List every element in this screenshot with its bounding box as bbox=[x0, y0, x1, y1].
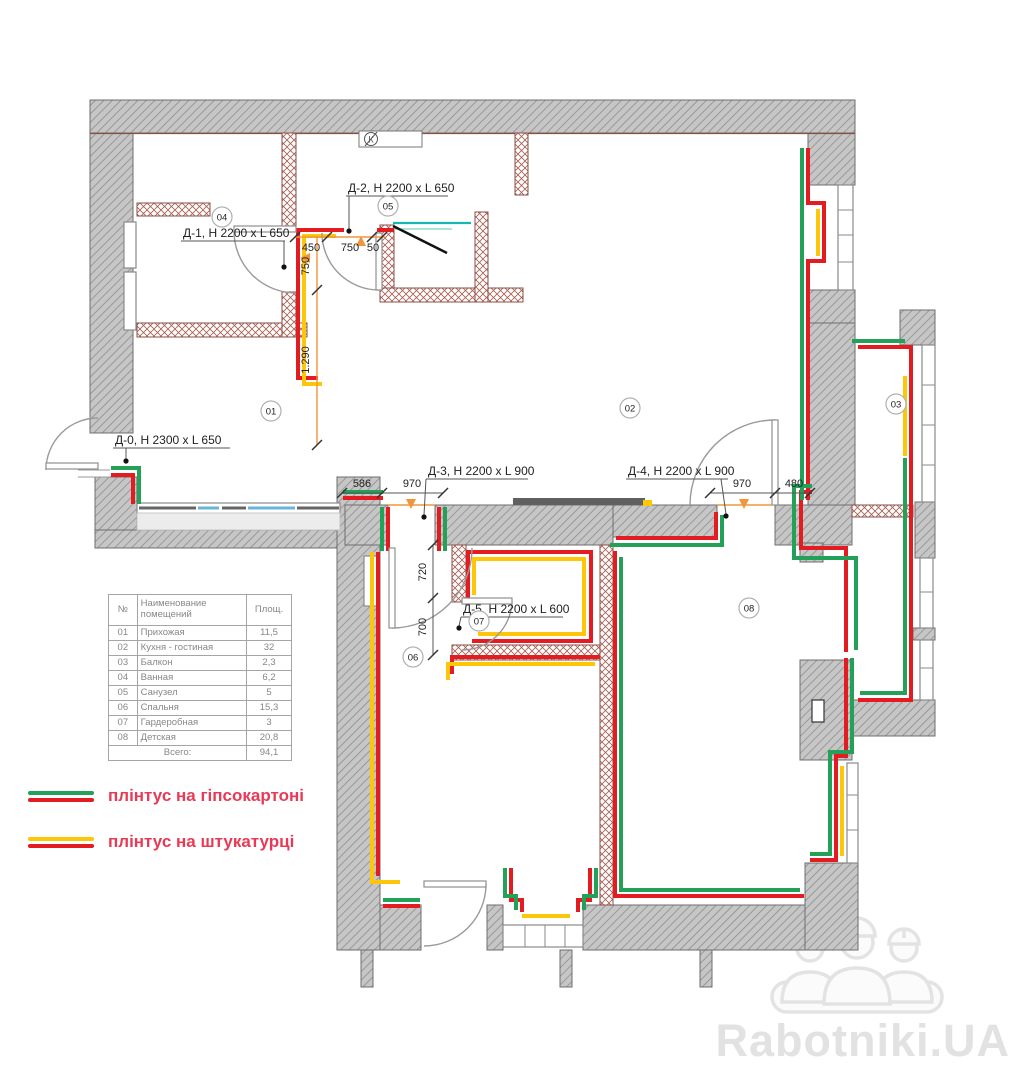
shower-door bbox=[393, 226, 447, 253]
vent-marker: К bbox=[359, 131, 422, 147]
total-label: Всего: bbox=[109, 746, 247, 761]
legend-label-plaster: плінтус на штукатурці bbox=[108, 832, 294, 852]
rooms-table: № Наименование помещений Площ. 01 Прихож… bbox=[108, 594, 292, 761]
door-arc-d4 bbox=[690, 420, 775, 505]
room-marker-06: 06 bbox=[408, 653, 419, 664]
room-marker-03: 03 bbox=[891, 400, 902, 411]
cell-area: 32 bbox=[247, 641, 292, 656]
table-row: 06 Спальня 15,3 bbox=[109, 701, 292, 716]
table-row: 04 Ванная 6,2 bbox=[109, 671, 292, 686]
legend-item-drywall: плінтус на гіпсокартоні bbox=[28, 786, 304, 806]
room-marker-02: 02 bbox=[625, 404, 636, 415]
window-mullions bbox=[525, 210, 935, 947]
drywall-skirting-swatch-icon bbox=[28, 788, 94, 805]
cell-name: Ванная bbox=[137, 671, 246, 686]
cell-no: 05 bbox=[109, 686, 138, 701]
legend-item-plaster: плінтус на штукатурці bbox=[28, 832, 304, 852]
room-marker-05: 05 bbox=[383, 202, 394, 213]
dim-480: 480 bbox=[785, 478, 803, 490]
table-row: 05 Санузел 5 bbox=[109, 686, 292, 701]
table-row: 03 Балкон 2,3 bbox=[109, 656, 292, 671]
header-no: № bbox=[109, 595, 138, 626]
dim-750v: 750 bbox=[300, 257, 312, 275]
dim-586: 586 bbox=[353, 478, 371, 490]
floor-plan-page: Rabotniki.UA bbox=[0, 0, 1016, 1080]
dim-700: 700 bbox=[417, 618, 429, 636]
legend-label-drywall: плінтус на гіпсокартоні bbox=[108, 786, 304, 806]
room-marker-01: 01 bbox=[266, 407, 277, 418]
floor-plan-drawing: Rabotniki.UA bbox=[0, 0, 1016, 1080]
cell-no: 07 bbox=[109, 716, 138, 731]
vent-label: К bbox=[368, 135, 374, 145]
cell-no: 03 bbox=[109, 656, 138, 671]
cell-name: Балкон bbox=[137, 656, 246, 671]
cell-name: Гардеробная bbox=[137, 716, 246, 731]
cell-area: 3 bbox=[247, 716, 292, 731]
table-row: 08 Детская 20,8 bbox=[109, 731, 292, 746]
table-header-row: № Наименование помещений Площ. bbox=[109, 595, 292, 626]
cell-area: 11,5 bbox=[247, 626, 292, 641]
dim-750h: 750 bbox=[341, 242, 359, 254]
door-label-d4: Д-4, Н 2200 x L 900 bbox=[628, 464, 735, 478]
cell-no: 02 bbox=[109, 641, 138, 656]
room-marker-07: 07 bbox=[474, 617, 485, 628]
cell-area: 6,2 bbox=[247, 671, 292, 686]
plaster-skirting-swatch-icon bbox=[28, 834, 94, 851]
table-row: 07 Гардеробная 3 bbox=[109, 716, 292, 731]
legend: плінтус на гіпсокартоні плінтус на штука… bbox=[28, 786, 304, 878]
cell-no: 06 bbox=[109, 701, 138, 716]
door-arc-d1 bbox=[234, 231, 296, 293]
cell-name: Санузел bbox=[137, 686, 246, 701]
socket-box bbox=[812, 700, 824, 722]
watermark-text: Rabotniki.UA bbox=[715, 1015, 1010, 1066]
header-name: Наименование помещений bbox=[137, 595, 246, 626]
dim-720: 720 bbox=[417, 563, 429, 581]
cell-name: Детская bbox=[137, 731, 246, 746]
dim-970a: 970 bbox=[403, 478, 421, 490]
table-row: 01 Прихожая 11,5 bbox=[109, 626, 292, 641]
door-arc-bedroom bbox=[424, 884, 486, 946]
window-sill bbox=[137, 513, 340, 530]
table-row: 02 Кухня - гостиная 32 bbox=[109, 641, 292, 656]
table-total-row: Всего: 94,1 bbox=[109, 746, 292, 761]
cell-area: 15,3 bbox=[247, 701, 292, 716]
door-label-d2: Д-2, Н 2200 x L 650 bbox=[348, 181, 455, 195]
cell-no: 04 bbox=[109, 671, 138, 686]
room-marker-04: 04 bbox=[217, 213, 228, 224]
dim-50: 50 bbox=[367, 242, 379, 254]
door-label-d1: Д-1, Н 2200 x L 650 bbox=[183, 226, 290, 240]
cell-area: 5 bbox=[247, 686, 292, 701]
cell-no: 08 bbox=[109, 731, 138, 746]
cell-no: 01 bbox=[109, 626, 138, 641]
total-value: 94,1 bbox=[247, 746, 292, 761]
cell-area: 20,8 bbox=[247, 731, 292, 746]
cell-name: Спальня bbox=[137, 701, 246, 716]
header-area: Площ. bbox=[247, 595, 292, 626]
door-label-d3: Д-3, Н 2200 x L 900 bbox=[428, 464, 535, 478]
cell-area: 2,3 bbox=[247, 656, 292, 671]
dim-450: 450 bbox=[302, 242, 320, 254]
cell-name: Прихожая bbox=[137, 626, 246, 641]
room-marker-08: 08 bbox=[744, 604, 755, 615]
counter-band bbox=[513, 498, 645, 505]
door-label-d0: Д-0, Н 2300 x L 650 bbox=[115, 433, 222, 447]
cell-name: Кухня - гостиная bbox=[137, 641, 246, 656]
dim-970b: 970 bbox=[733, 478, 751, 490]
dim-1290: 1.290 bbox=[300, 346, 312, 374]
